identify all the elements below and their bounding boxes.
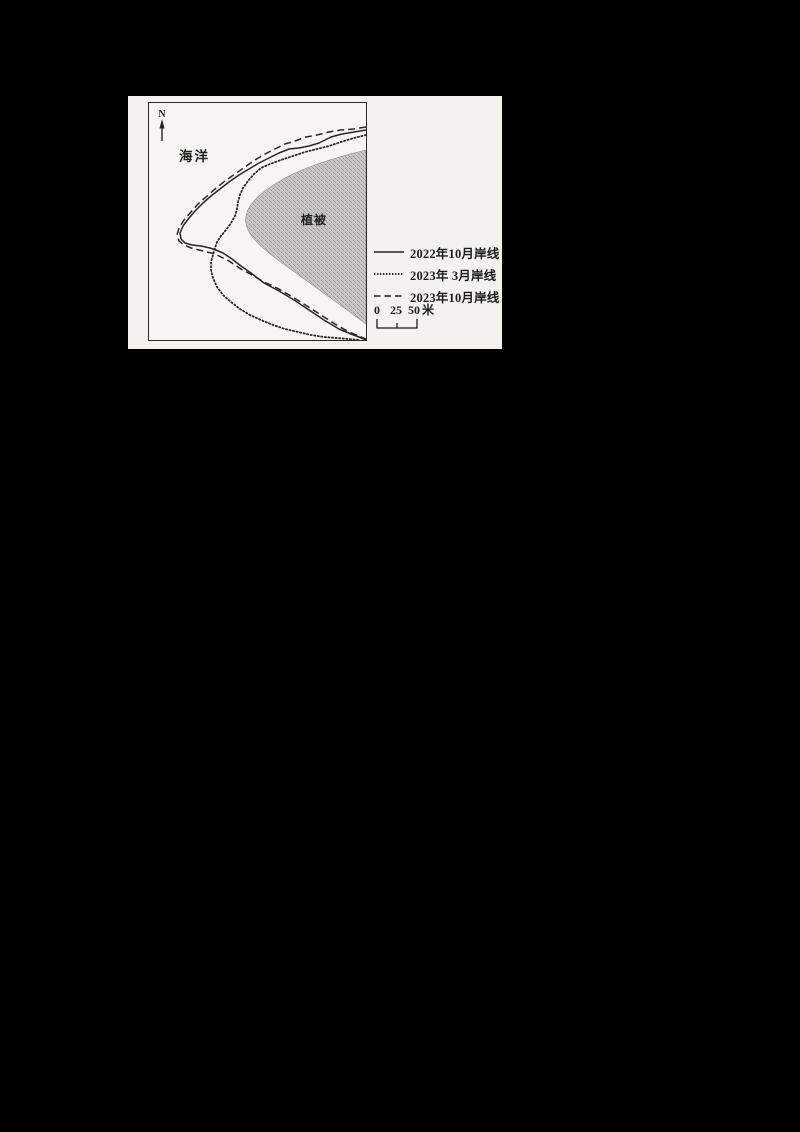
legend-label: 2022年10月岸线 (410, 243, 500, 262)
dotted-line-icon (374, 269, 404, 279)
figure-sheet: N 海洋 植被 2022年10月岸线 (128, 96, 502, 349)
scale-tick-50: 50 (408, 303, 420, 317)
map-frame: N 海洋 植被 (148, 102, 367, 341)
scale-bar-bracket (377, 319, 417, 328)
north-arrow: N (158, 109, 166, 141)
vegetation-area (246, 150, 366, 324)
legend-item-2022-10: 2022年10月岸线 (374, 244, 502, 260)
scale-unit: 米 (422, 302, 435, 317)
scale-bar: 0 25 50 米 (374, 300, 446, 336)
solid-line-icon (374, 247, 404, 257)
vegetation-label: 植被 (300, 212, 327, 227)
north-arrow-label: N (158, 109, 166, 120)
coastline-map: N 海洋 植被 (149, 103, 366, 340)
legend-item-2023-03: 2023年 3月岸线 (374, 266, 502, 282)
scale-tick-25: 25 (390, 303, 402, 317)
ocean-label: 海洋 (179, 148, 210, 164)
scale-tick-0: 0 (374, 303, 380, 317)
legend-label: 2023年 3月岸线 (410, 265, 496, 284)
